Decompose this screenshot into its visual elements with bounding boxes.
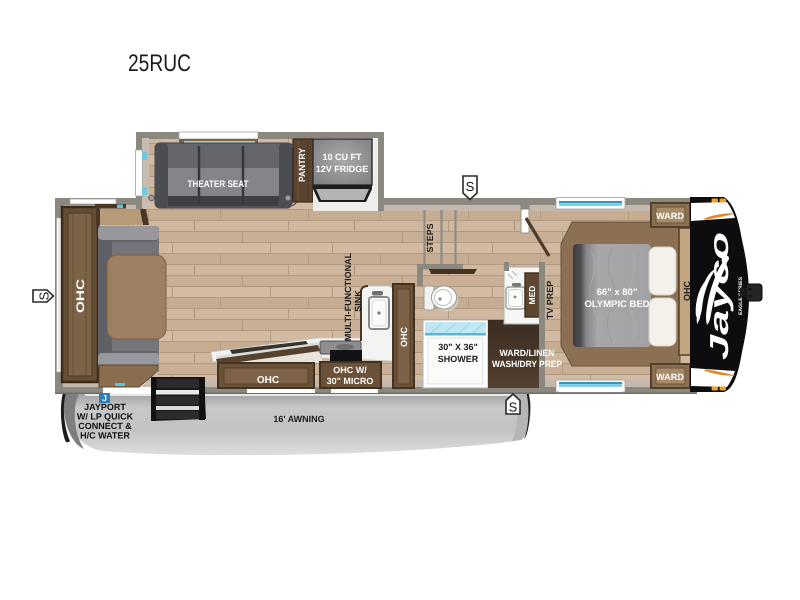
svg-text:Jayco: Jayco: [704, 232, 734, 360]
svg-text:10 CU FT: 10 CU FT: [322, 152, 362, 162]
svg-text:30" X 36": 30" X 36": [438, 342, 478, 352]
svg-text:OHC W/: OHC W/: [333, 365, 367, 375]
svg-text:12V FRIDGE: 12V FRIDGE: [316, 164, 369, 174]
svg-text:OHC: OHC: [257, 375, 279, 386]
svg-text:S: S: [466, 179, 475, 194]
svg-text:CONNECT &: CONNECT &: [78, 421, 132, 431]
svg-text:MED: MED: [527, 286, 537, 305]
svg-text:THEATER SEAT: THEATER SEAT: [188, 179, 249, 190]
svg-text:SHOWER: SHOWER: [438, 354, 479, 364]
svg-text:MULTI-FUNCTIONAL: MULTI-FUNCTIONAL: [343, 252, 353, 341]
svg-text:16' AWNING: 16' AWNING: [273, 414, 324, 424]
svg-text:OHC: OHC: [399, 327, 409, 348]
svg-text:25RUC: 25RUC: [128, 50, 191, 77]
svg-text:OLYMPIC BED: OLYMPIC BED: [584, 299, 649, 310]
svg-text:STEPS: STEPS: [425, 224, 435, 253]
svg-text:WARD: WARD: [656, 372, 685, 382]
svg-text:WARD/LINEN: WARD/LINEN: [500, 348, 555, 358]
svg-text:S: S: [37, 291, 52, 300]
svg-text:66" x 80": 66" x 80": [597, 287, 638, 298]
svg-text:30" MICRO: 30" MICRO: [327, 376, 374, 386]
svg-text:JAYPORT: JAYPORT: [84, 402, 126, 412]
svg-text:H/C WATER: H/C WATER: [80, 431, 130, 441]
svg-text:W/ LP QUICK: W/ LP QUICK: [77, 412, 134, 422]
svg-text:WARD: WARD: [656, 211, 685, 221]
svg-text:OHC: OHC: [75, 279, 87, 313]
svg-text:S: S: [509, 400, 518, 415]
svg-text:SINK: SINK: [353, 290, 363, 312]
svg-text:PANTRY: PANTRY: [297, 148, 307, 182]
svg-text:TV PREP: TV PREP: [545, 281, 555, 320]
svg-text:WASH/DRY PREP: WASH/DRY PREP: [492, 359, 562, 369]
